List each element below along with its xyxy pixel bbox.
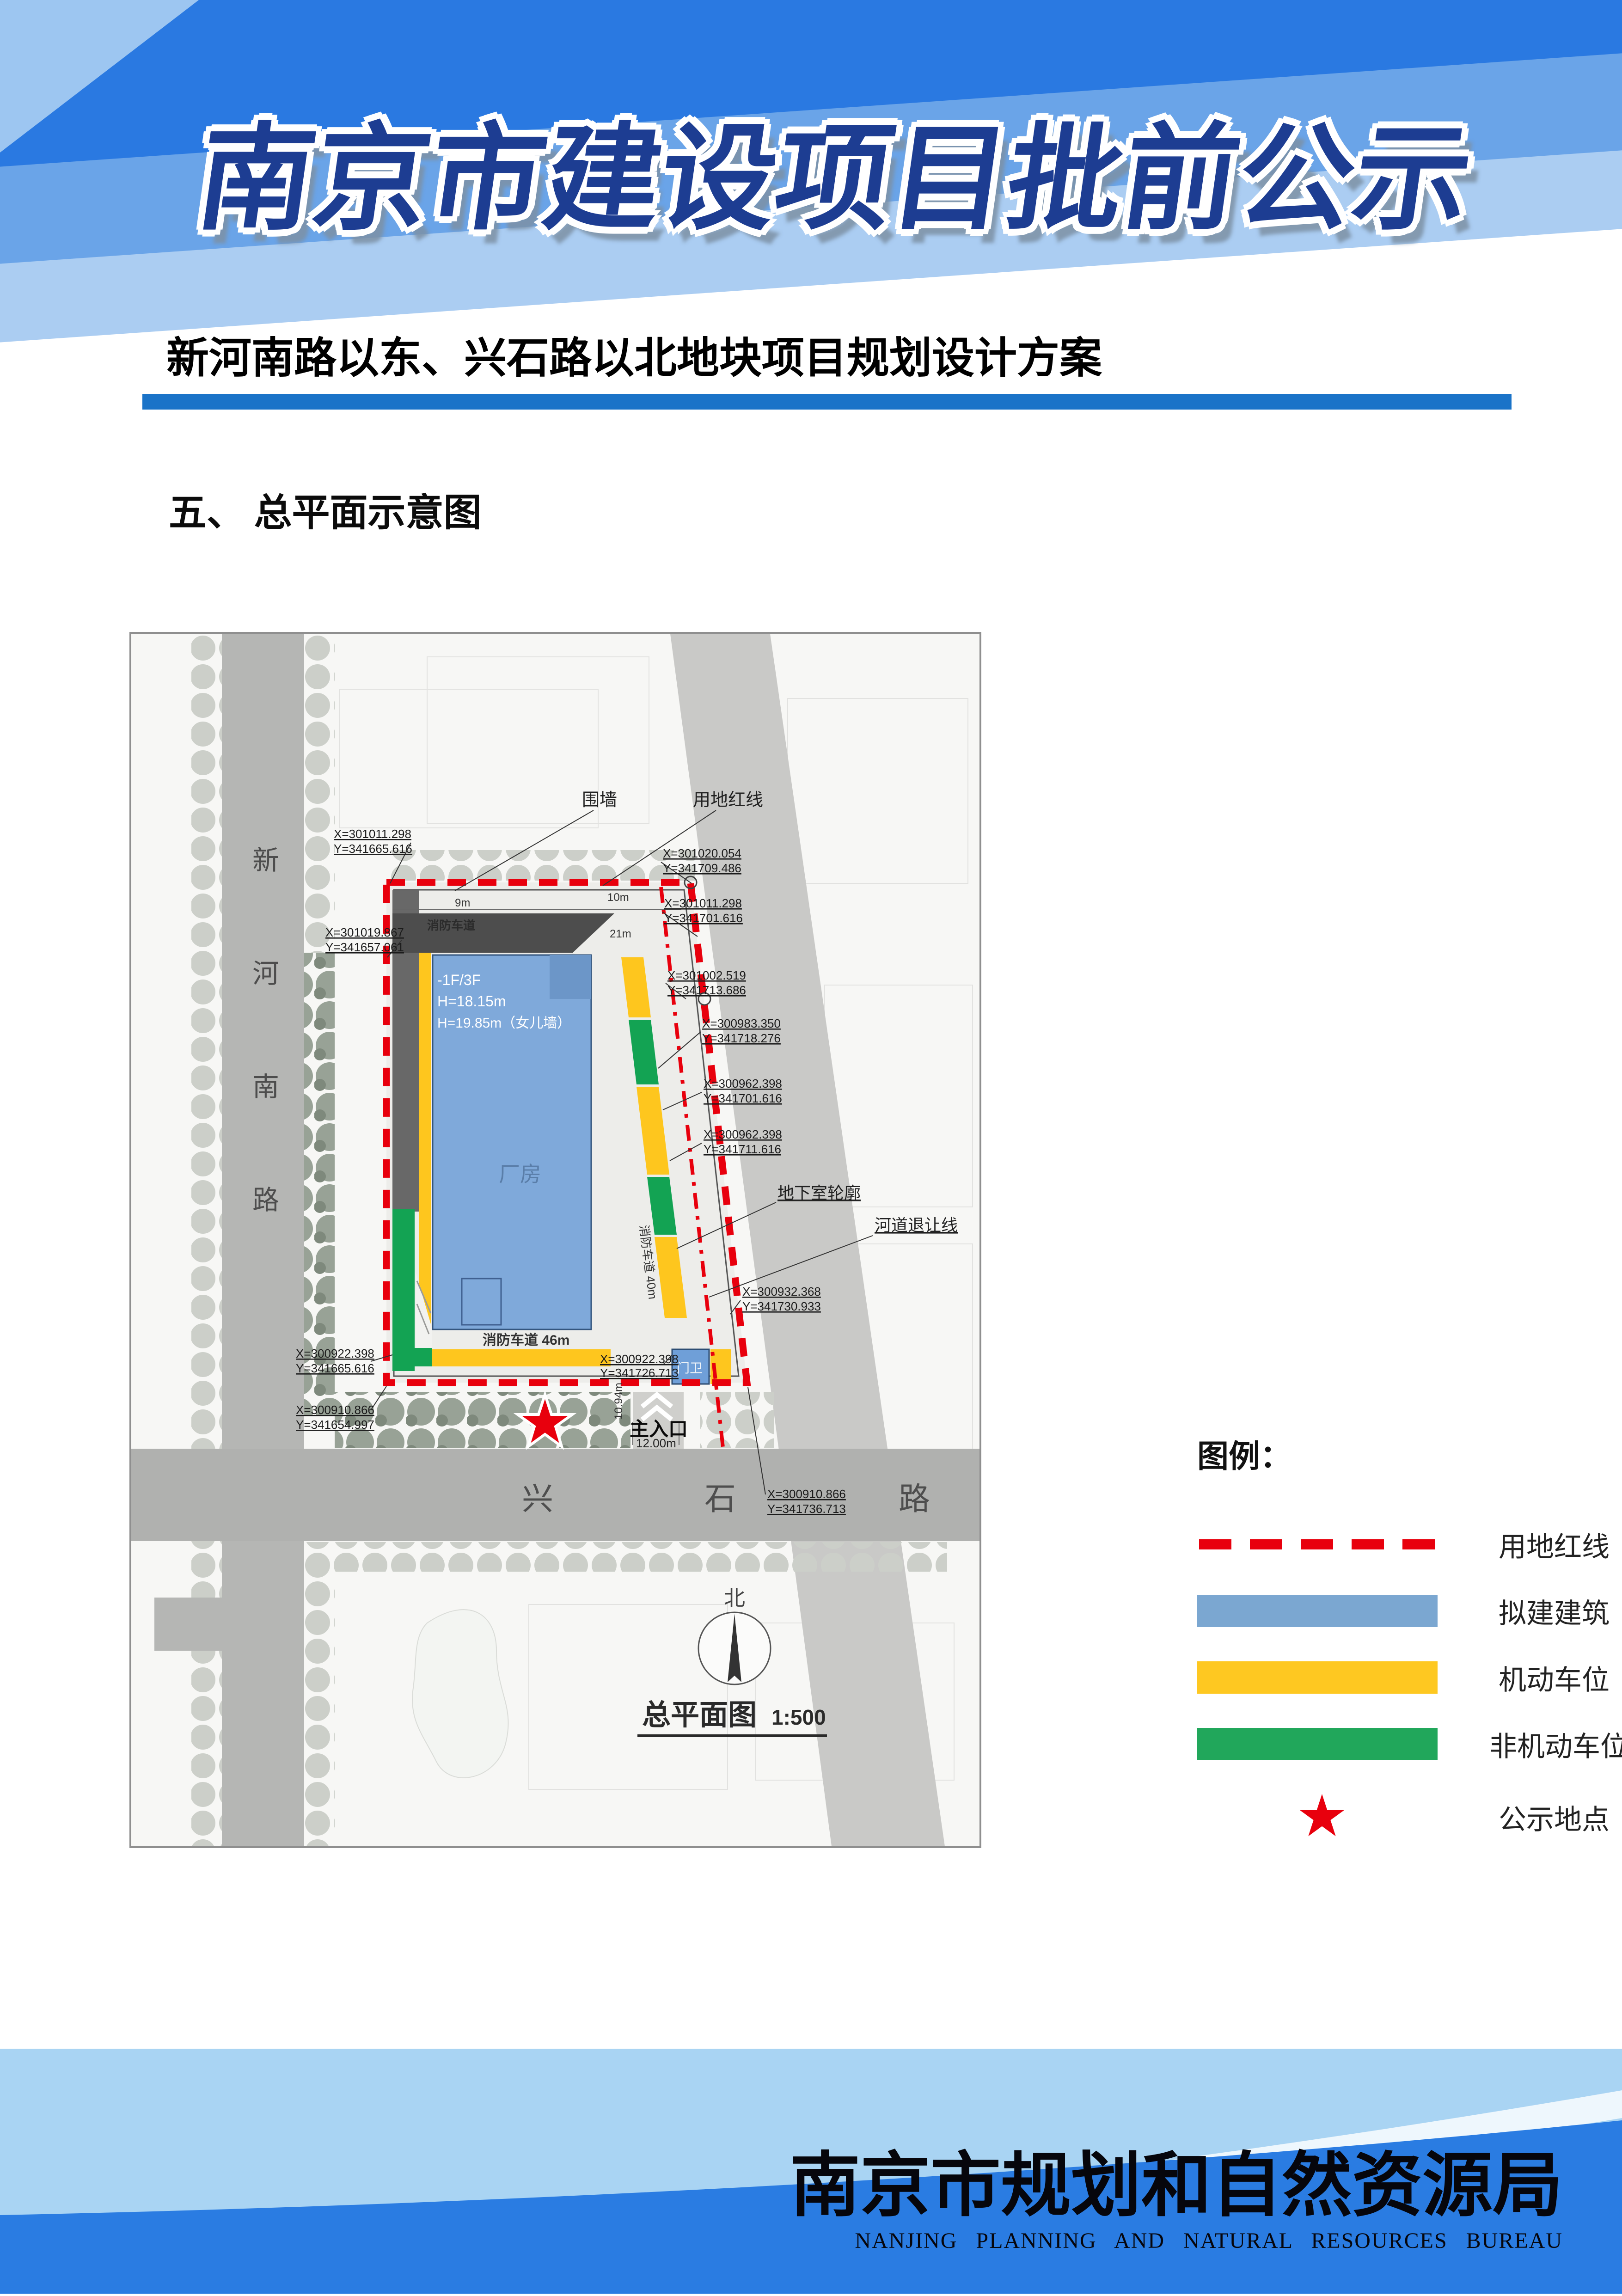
svg-text:Y=341701.616: Y=341701.616 [664, 911, 743, 925]
yellow-swatch [1197, 1661, 1447, 1694]
basement-label: 地下室轮廓 [777, 1183, 861, 1202]
site-plan-svg: -1F/3F H=18.15m H=19.85m（女儿墙） 厂房 消防车道 46… [131, 634, 979, 1846]
svg-text:Y=341718.276: Y=341718.276 [702, 1031, 781, 1045]
star-icon [1197, 1788, 1447, 1846]
svg-text:路: 路 [899, 1482, 930, 1517]
svg-text:X=301002.519: X=301002.519 [667, 968, 746, 982]
legend-label: 公示地点 [1499, 1797, 1610, 1837]
legend-title: 图例： [1197, 1431, 1613, 1476]
fire-lane-top-label: 消防车道 [427, 918, 475, 932]
road-stub-west [154, 1598, 224, 1651]
svg-text:兴: 兴 [522, 1482, 553, 1517]
dim-9m: 9m [455, 897, 470, 909]
svg-text:X=301011.298: X=301011.298 [664, 896, 742, 910]
legend-label: 非机动车位 [1489, 1724, 1622, 1764]
tree-row-south-below [335, 1542, 947, 1572]
tree-row-south-dark [335, 1392, 630, 1448]
svg-text:Y=341709.486: Y=341709.486 [663, 861, 741, 875]
road-west [222, 634, 304, 1846]
svg-text:X=301020.054: X=301020.054 [663, 846, 741, 860]
svg-text:南: 南 [252, 1072, 279, 1102]
building-height: H=18.15m [437, 993, 506, 1010]
svg-text:河: 河 [252, 959, 279, 989]
svg-text:路: 路 [252, 1185, 279, 1215]
svg-text:Y=341654.997: Y=341654.997 [296, 1418, 374, 1432]
fence-label: 围墙 [582, 790, 617, 810]
svg-text:Y=341713.686: Y=341713.686 [667, 983, 746, 997]
legend-item-parking: 机动车位 [1197, 1654, 1613, 1701]
plan-scale: 1:500 [771, 1705, 826, 1729]
svg-text:X=300910.866: X=300910.866 [296, 1403, 374, 1417]
dim-21m: 21m [610, 928, 631, 940]
site-plan-panel: -1F/3F H=18.15m H=19.85m（女儿墙） 厂房 消防车道 46… [129, 632, 981, 1848]
building-floors: -1F/3F [437, 972, 481, 988]
svg-text:X=300962.398: X=300962.398 [704, 1127, 782, 1141]
red-dash-swatch [1197, 1539, 1447, 1550]
svg-text:Y=341665.616: Y=341665.616 [334, 842, 412, 856]
page-title: 南京市建设项目批前公示 [190, 116, 1465, 244]
svg-text:Y=341736.713: Y=341736.713 [767, 1502, 846, 1516]
svg-text:Y=341730.933: Y=341730.933 [742, 1299, 821, 1313]
svg-text:X=300983.350: X=300983.350 [702, 1016, 781, 1030]
dim-10m: 10m [607, 891, 629, 904]
svg-text:新: 新 [252, 845, 279, 876]
svg-text:Y=341711.616: Y=341711.616 [704, 1142, 781, 1156]
legend-label: 拟建建筑 [1499, 1591, 1610, 1631]
legend: 图例： 用地红线 拟建建筑 机动车位 非机动车位 [1197, 1431, 1613, 1867]
proposed-building [433, 955, 591, 1329]
svg-text:石: 石 [704, 1482, 736, 1517]
fire-lane-46-label: 消防车道 46m [483, 1332, 569, 1348]
svg-text:X=300910.866: X=300910.866 [767, 1487, 846, 1501]
legend-item-notice-site: 公示地点 [1197, 1787, 1613, 1847]
blue-swatch [1197, 1595, 1447, 1627]
tree-row-west-left [191, 634, 222, 1846]
bike-parking-west-green [392, 1209, 415, 1371]
building-name: 厂房 [499, 1162, 541, 1186]
tree-row-west-right-top [304, 634, 335, 953]
building-notch [550, 955, 591, 999]
footer-text: 南京市规划和自然资源局 NANJING PLANNING AND NATURAL… [790, 2149, 1563, 2253]
legend-item-building: 拟建建筑 [1197, 1587, 1613, 1635]
parking-west-yellow [419, 953, 431, 1327]
road-south [131, 1449, 979, 1541]
svg-text:X=300922.398: X=300922.398 [296, 1347, 374, 1360]
green-swatch [1197, 1728, 1438, 1760]
svg-text:X=301019.867: X=301019.867 [325, 925, 404, 939]
header-corner-wedge [0, 0, 199, 153]
dim-entrance: 12.00m [636, 1436, 676, 1450]
section-heading: 五、 总平面示意图 [169, 482, 482, 537]
bureau-name-en: NANJING PLANNING AND NATURAL RESOURCES B… [790, 2228, 1563, 2253]
legend-item-red-line: 用地红线 [1197, 1521, 1613, 1568]
dim-1094: 10.94m [612, 1383, 625, 1420]
svg-text:X=300932.368: X=300932.368 [742, 1285, 821, 1298]
river-setback-label: 河道退让线 [875, 1216, 958, 1235]
legend-label: 机动车位 [1499, 1658, 1610, 1698]
parking-bottom-yellow [422, 1349, 611, 1366]
bike-parking-arm-green [392, 1348, 432, 1366]
tree-row-south-right [700, 1392, 774, 1448]
footer-band: 南京市规划和自然资源局 NANJING PLANNING AND NATURAL… [0, 2049, 1622, 2294]
svg-text:Y=341726.713: Y=341726.713 [600, 1366, 679, 1380]
svg-text:Y=341657.061: Y=341657.061 [325, 940, 404, 954]
tree-row-west-right-bottom [304, 1542, 335, 1846]
svg-text:X=301011.298: X=301011.298 [334, 827, 411, 841]
building-parapet: H=19.85m（女儿墙） [437, 1016, 571, 1031]
divider-bar [142, 394, 1512, 410]
svg-text:X=300962.398: X=300962.398 [704, 1077, 782, 1090]
plan-title: 总平面图 [642, 1699, 757, 1731]
guard-label: 门卫 [677, 1361, 703, 1375]
svg-text:X=300922.398: X=300922.398 [600, 1352, 679, 1366]
red-line-label: 用地红线 [693, 790, 763, 810]
svg-text:Y=341665.616: Y=341665.616 [296, 1361, 374, 1375]
north-label: 北 [724, 1586, 745, 1610]
legend-label: 用地红线 [1499, 1525, 1610, 1565]
project-subtitle: 新河南路以东、兴石路以北地块项目规划设计方案 [166, 324, 1102, 385]
svg-text:Y=341701.616: Y=341701.616 [704, 1091, 782, 1105]
legend-item-bike-parking: 非机动车位 [1197, 1720, 1613, 1768]
bureau-name-cn: 南京市规划和自然资源局 [790, 2149, 1563, 2223]
